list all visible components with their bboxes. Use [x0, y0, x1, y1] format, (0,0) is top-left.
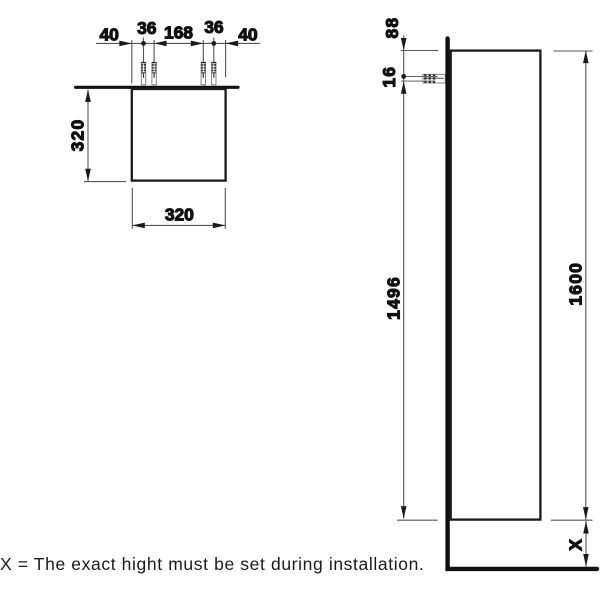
svg-text:16: 16: [379, 66, 399, 88]
svg-text:36: 36: [204, 17, 224, 37]
svg-text:40: 40: [238, 24, 258, 44]
svg-text:320: 320: [165, 204, 194, 224]
svg-text:168: 168: [164, 23, 193, 43]
svg-text:1496: 1496: [383, 276, 403, 320]
svg-text:88: 88: [382, 17, 402, 39]
svg-text:X: X: [565, 538, 585, 551]
svg-text:36: 36: [137, 18, 157, 38]
svg-text:40: 40: [99, 24, 119, 44]
svg-text:320: 320: [67, 119, 87, 152]
svg-text:X = The exact hight must be se: X = The exact hight must be set during i…: [0, 554, 424, 574]
svg-text:1600: 1600: [565, 262, 585, 306]
